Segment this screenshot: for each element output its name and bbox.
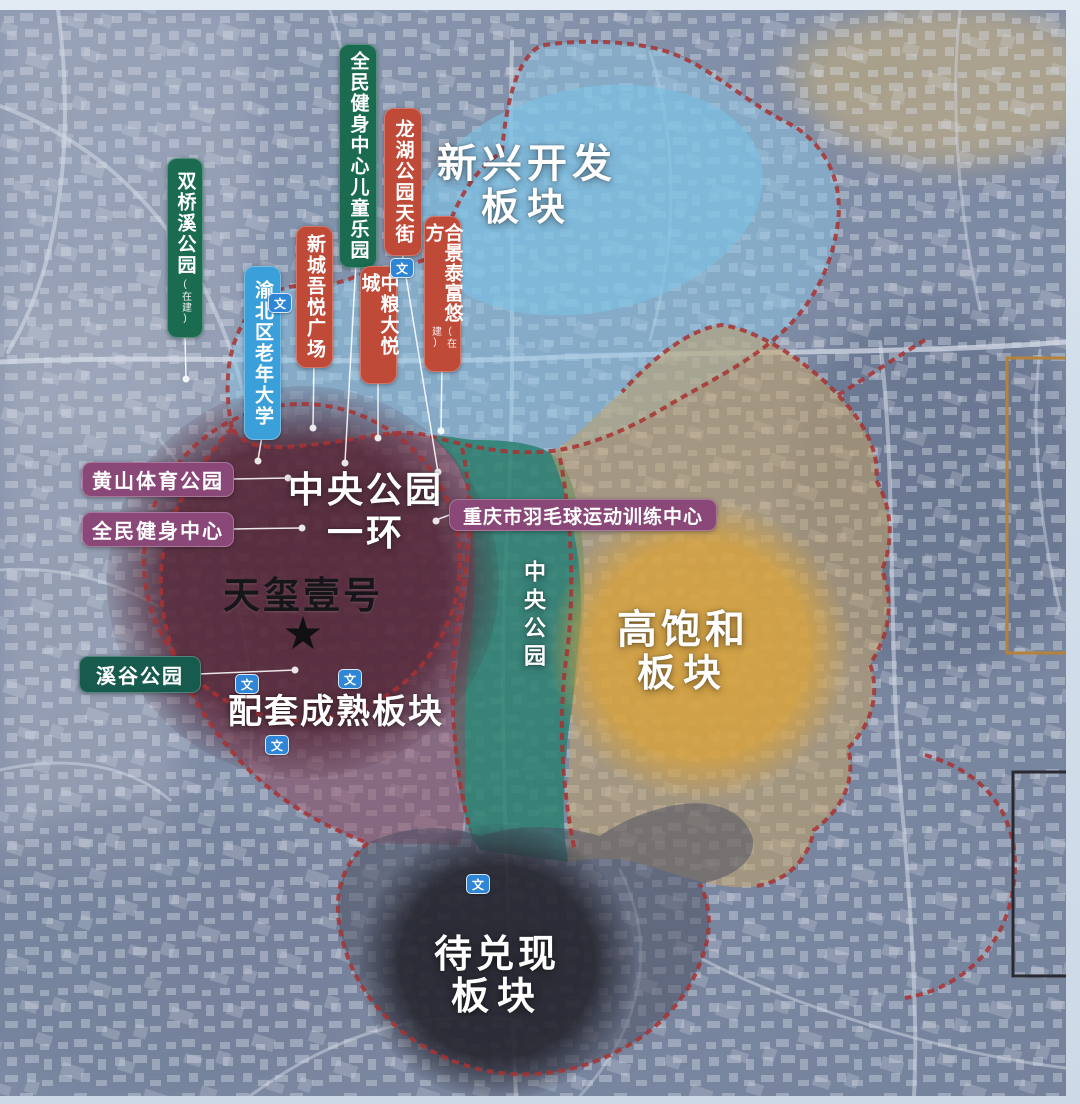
poi-pill-fitness-children-park: 全民健身中心儿童乐园 xyxy=(339,44,377,268)
poi-label: 黄山体育公园 xyxy=(92,465,224,494)
poi-label: 双桥溪公园 xyxy=(176,171,195,276)
zone-title-line: 板块 xyxy=(377,976,617,1018)
poi-pill-wuyue-plaza: 新城吾悦广场 xyxy=(296,226,333,368)
poi-pill-joy-city: 中粮大悦城 xyxy=(360,266,397,384)
school-icon: 文 xyxy=(265,735,289,755)
poi-pill-badminton-training-center: 重庆市羽毛球运动训练中心 xyxy=(449,499,717,531)
poi-label: 溪谷公园 xyxy=(96,660,184,689)
poi-pill-hejing-uform: 合景泰富悠方 (在建) xyxy=(424,216,461,372)
satellite-map: 双桥溪公园 (在建) 全民健身中心儿童乐园 龙湖公园天街 新城吾悦广场 中粮大悦… xyxy=(0,10,1066,1096)
school-icon: 文 xyxy=(466,874,490,894)
school-icon: 文 xyxy=(390,258,414,278)
poi-label: 中粮大悦城 xyxy=(360,273,398,377)
map-photo: { "zones": { "emerging": {"name": "新兴开发板… xyxy=(0,0,1080,1104)
zone-title-line: 板块 xyxy=(392,186,662,230)
zone-title-line: 配套成熟板块 xyxy=(206,694,466,730)
zone-title-line: 中央公园 xyxy=(246,468,486,511)
zone-title-line: 高饱和 xyxy=(563,608,803,652)
school-icon: 文 xyxy=(268,293,292,313)
poi-pill-xigu-park: 溪谷公园 xyxy=(79,656,201,693)
poi-label: 全民健身中心儿童乐园 xyxy=(349,51,368,261)
zone-title-pending: 待兑现 板块 xyxy=(377,934,617,1018)
poi-pill-huangshan-sports-park: 黄山体育公园 xyxy=(82,462,234,497)
zone-title-mature: 配套成熟板块 xyxy=(206,694,466,730)
zone-title-central-park-ring: 中央公园 一环 xyxy=(246,468,486,554)
poi-label: 新城吾悦广场 xyxy=(305,234,324,360)
zone-title-line: 待兑现 xyxy=(377,934,617,976)
poi-sublabel: (在建) xyxy=(178,279,193,325)
school-icon: 文 xyxy=(235,674,259,694)
poi-pill-fitness-center: 全民健身中心 xyxy=(82,512,234,547)
zone-title-line: 板块 xyxy=(563,652,803,696)
poi-label: 全民健身中心 xyxy=(92,515,224,544)
poi-sublabel: (在建) xyxy=(428,326,458,365)
zone-title-line: 中央公园 xyxy=(521,560,546,672)
zone-title-emerging: 新兴开发 板块 xyxy=(392,142,662,230)
poi-label: 合景泰富悠方 xyxy=(424,223,462,323)
poi-label: 重庆市羽毛球运动训练中心 xyxy=(463,502,703,529)
poi-pill-shuangqiaoxi-park: 双桥溪公园 (在建) xyxy=(167,158,203,338)
school-icon: 文 xyxy=(338,669,362,689)
zone-title-central-park: 中央公园 xyxy=(517,560,549,672)
zone-title-saturated: 高饱和 板块 xyxy=(563,608,803,696)
zone-title-line: 新兴开发 xyxy=(392,142,662,186)
project-star-icon: ★ xyxy=(281,608,325,658)
zone-title-line: 一环 xyxy=(246,511,486,554)
